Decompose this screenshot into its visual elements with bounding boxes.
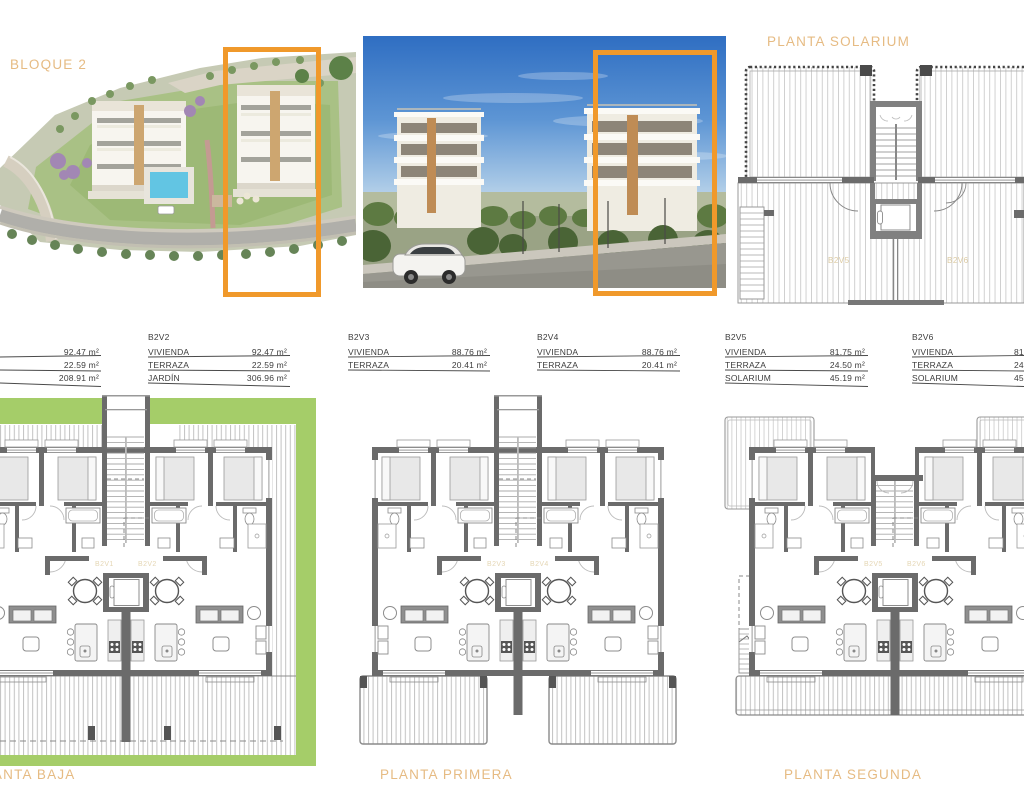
svg-text:VIVIENDA: VIVIENDA <box>537 347 578 357</box>
svg-text:22.59 m²: 22.59 m² <box>252 360 287 370</box>
svg-text:B2V3: B2V3 <box>348 332 370 342</box>
svg-text:22.59 m²: 22.59 m² <box>64 360 99 370</box>
svg-text:88.76 m²: 88.76 m² <box>452 347 487 357</box>
svg-text:B2V4: B2V4 <box>537 332 559 342</box>
svg-text:B2V4: B2V4 <box>530 561 549 568</box>
svg-text:VIVIENDA: VIVIENDA <box>348 347 389 357</box>
svg-text:B2V6: B2V6 <box>912 332 934 342</box>
svg-text:SOLARIUM: SOLARIUM <box>912 373 958 383</box>
svg-text:B2V6: B2V6 <box>947 256 969 265</box>
svg-text:TERRAZA: TERRAZA <box>537 360 578 370</box>
svg-text:81.75 m²: 81.75 m² <box>1014 347 1024 357</box>
svg-text:20.41 m²: 20.41 m² <box>452 360 487 370</box>
svg-text:SOLARIUM: SOLARIUM <box>725 373 771 383</box>
svg-text:TERRAZA: TERRAZA <box>148 360 189 370</box>
svg-text:208.91 m²: 208.91 m² <box>59 373 99 383</box>
svg-text:VIVIENDA: VIVIENDA <box>725 347 766 357</box>
svg-text:81.75 m²: 81.75 m² <box>830 347 865 357</box>
svg-text:20.41 m²: 20.41 m² <box>642 360 677 370</box>
svg-text:24.50 m²: 24.50 m² <box>1014 360 1024 370</box>
svg-text:B2V1: B2V1 <box>95 561 114 568</box>
svg-text:24.50 m²: 24.50 m² <box>830 360 865 370</box>
svg-text:45.19 m²: 45.19 m² <box>830 373 865 383</box>
svg-text:VIVIENDA: VIVIENDA <box>148 347 189 357</box>
svg-text:TERRAZA: TERRAZA <box>912 360 953 370</box>
svg-text:TERRAZA: TERRAZA <box>348 360 389 370</box>
svg-text:B2V6: B2V6 <box>907 561 926 568</box>
svg-text:JARDÍN: JARDÍN <box>148 373 180 383</box>
svg-text:306.96 m²: 306.96 m² <box>247 373 287 383</box>
svg-text:88.76 m²: 88.76 m² <box>642 347 677 357</box>
svg-text:92.47 m²: 92.47 m² <box>252 347 287 357</box>
svg-text:VIVIENDA: VIVIENDA <box>912 347 953 357</box>
svg-text:B2V3: B2V3 <box>487 561 506 568</box>
svg-text:B2V5: B2V5 <box>864 561 883 568</box>
svg-text:B2V5: B2V5 <box>828 256 850 265</box>
svg-text:TERRAZA: TERRAZA <box>725 360 766 370</box>
svg-text:B2V2: B2V2 <box>138 561 157 568</box>
svg-text:45.19 m²: 45.19 m² <box>1014 373 1024 383</box>
svg-text:B2V2: B2V2 <box>148 332 170 342</box>
svg-text:B2V5: B2V5 <box>725 332 747 342</box>
svg-text:92.47 m²: 92.47 m² <box>64 347 99 357</box>
